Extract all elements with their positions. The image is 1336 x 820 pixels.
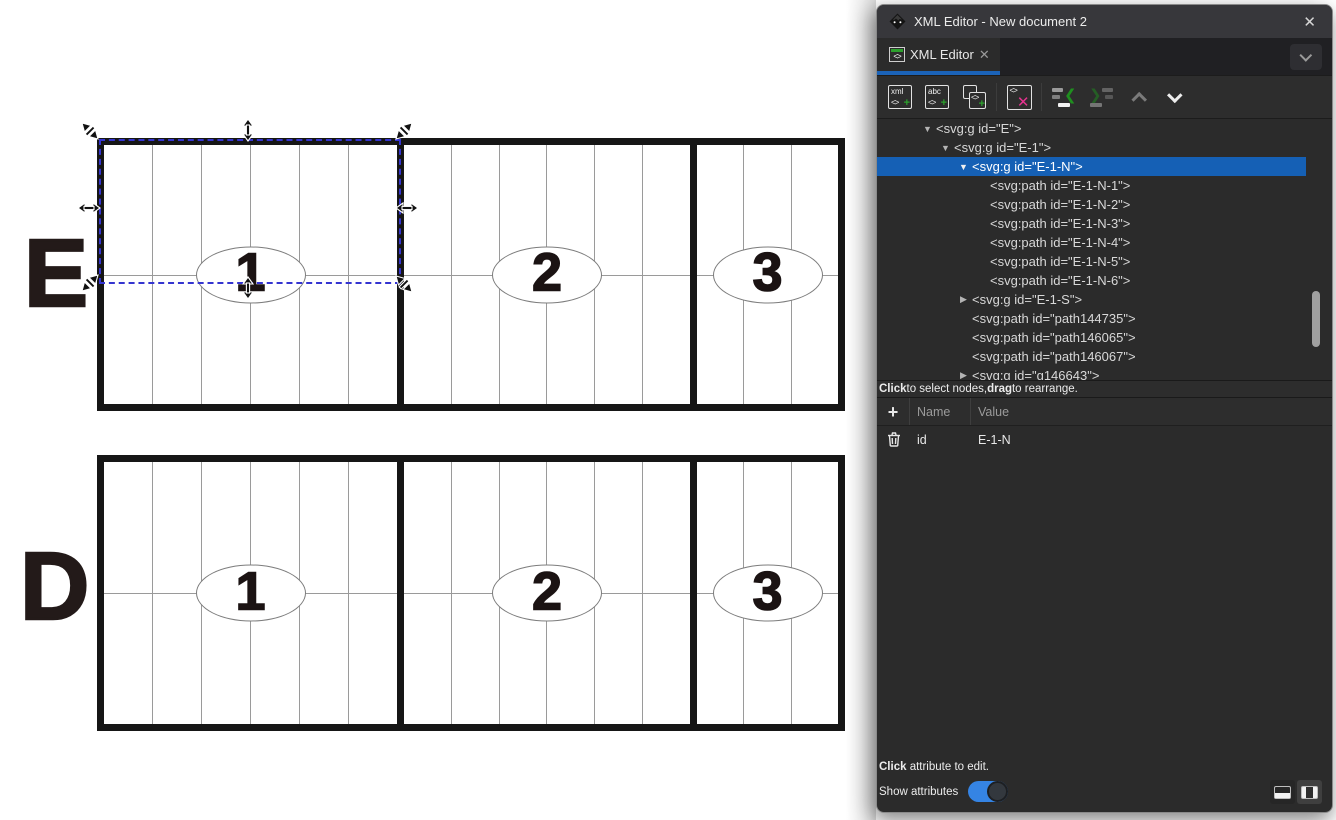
scale-handle-right-icon[interactable] [395, 201, 419, 215]
unindent-node-icon: ❮ [1051, 84, 1077, 110]
toolbar-separator [1041, 83, 1042, 111]
scale-handle-bottom-left-icon[interactable] [80, 273, 100, 293]
tree-row[interactable]: ▼<svg:g id="E"> [877, 119, 1306, 138]
figure-d-section-3[interactable]: 3 [697, 462, 838, 724]
attribute-value[interactable]: E-1-N [971, 433, 1332, 447]
dialog-close-button[interactable]: ✕ [1299, 13, 1320, 31]
selection-bbox [99, 139, 401, 284]
tab-xml-editor[interactable]: <> XML Editor ✕ [877, 38, 1000, 75]
xml-editor-dialog: XML Editor - New document 2 ✕ <> XML Edi… [876, 4, 1333, 813]
figure-e-section-3[interactable]: 3 [697, 145, 838, 404]
drawing-canvas[interactable]: E D 1 2 3 1 2 [0, 0, 876, 820]
node-label: <svg:g id="E-1-S"> [972, 292, 1082, 307]
xml-editor-tab-icon: <> [889, 47, 905, 62]
section-number: 2 [532, 564, 562, 622]
attribute-row[interactable]: idE-1-N [877, 426, 1332, 453]
expander-closed-icon[interactable]: ▶ [955, 294, 972, 305]
move-node-down-button[interactable] [1160, 82, 1190, 112]
tree-row[interactable]: <svg:path id="path144735"> [877, 309, 1306, 328]
section-ellipse[interactable]: 1 [196, 565, 306, 622]
section-ellipse[interactable]: 3 [713, 565, 823, 622]
show-attributes-label: Show attributes [879, 786, 958, 798]
tab-bar: <> XML Editor ✕ [877, 38, 1332, 75]
section-divider [690, 462, 697, 724]
tree-row[interactable]: <svg:path id="E-1-N-2"> [877, 195, 1306, 214]
scale-handle-bottom-right-icon[interactable] [394, 274, 414, 294]
chevron-up-icon [1131, 91, 1147, 107]
section-number: 3 [752, 564, 782, 622]
delete-node-icon: <> ✕ [1007, 85, 1032, 110]
tree-row[interactable]: <svg:path id="E-1-N-4"> [877, 233, 1306, 252]
chevron-down-icon [1167, 87, 1183, 103]
section-ellipse[interactable]: 2 [492, 565, 602, 622]
figure-letter-d[interactable]: D [20, 539, 89, 635]
tree-row[interactable]: <svg:path id="E-1-N-6"> [877, 271, 1306, 290]
scale-handle-left-icon[interactable] [77, 201, 101, 215]
scale-handle-top-icon[interactable] [241, 118, 255, 142]
tree-row[interactable]: <svg:path id="E-1-N-3"> [877, 214, 1306, 233]
node-label: <svg:path id="E-1-N-3"> [990, 216, 1130, 231]
tree-row[interactable]: <svg:path id="path146065"> [877, 328, 1306, 347]
delete-attribute-button[interactable] [877, 432, 910, 447]
horizontal-layout-button[interactable] [1270, 780, 1295, 804]
move-node-up-button[interactable] [1123, 82, 1153, 112]
indent-node-button[interactable]: ❯ [1086, 82, 1116, 112]
figure-d-section-1[interactable]: 1 [104, 462, 397, 724]
new-text-node-icon: abc <> + [925, 85, 949, 109]
xml-tree-rows: ▼<svg:g id="E">▼<svg:g id="E-1">▼<svg:g … [877, 119, 1332, 380]
node-label: <svg:path id="E-1-N-1"> [990, 178, 1130, 193]
section-number: 3 [752, 246, 782, 304]
chevron-down-icon [1299, 49, 1312, 62]
expander-open-icon[interactable]: ▼ [919, 124, 936, 134]
add-attribute-button[interactable]: + [877, 398, 910, 425]
tab-label: XML Editor [910, 47, 974, 62]
expander-open-icon[interactable]: ▼ [937, 143, 954, 153]
vertical-layout-icon [1301, 786, 1318, 799]
window-edge-shadow [846, 0, 876, 820]
attributes-table: idE-1-N [877, 426, 1332, 453]
indent-node-icon: ❯ [1088, 84, 1114, 110]
tree-row[interactable]: ▶<svg:g id="g146643"> [877, 366, 1306, 380]
dialog-title: XML Editor - New document 2 [914, 14, 1087, 29]
tab-close-button[interactable]: ✕ [979, 47, 990, 63]
tree-row[interactable]: ▼<svg:g id="E-1"> [877, 138, 1306, 157]
section-divider [397, 462, 404, 724]
figure-e-section-2[interactable]: 2 [404, 145, 690, 404]
new-element-node-icon: xml <> + [888, 85, 912, 109]
node-label: <svg:g id="E"> [936, 121, 1021, 136]
tree-hint-text: Click to select nodes, drag to rearrange… [877, 380, 1332, 397]
new-text-node-button[interactable]: abc <> + [922, 82, 952, 112]
duplicate-node-button[interactable]: <> + [959, 82, 989, 112]
attr-value-column-header: Value [971, 405, 1332, 419]
toolbar-separator [996, 83, 997, 111]
new-element-node-button[interactable]: xml <> + [885, 82, 915, 112]
figure-letter-e[interactable]: E [24, 226, 88, 322]
horizontal-layout-icon [1274, 786, 1291, 799]
node-label: <svg:path id="E-1-N-6"> [990, 273, 1130, 288]
scale-handle-top-left-icon[interactable] [80, 121, 100, 141]
unindent-node-button[interactable]: ❮ [1049, 82, 1079, 112]
dialog-titlebar[interactable]: XML Editor - New document 2 ✕ [877, 5, 1332, 38]
attribute-name[interactable]: id [910, 433, 971, 447]
section-ellipse[interactable]: 2 [492, 246, 602, 303]
tab-list-dropdown-button[interactable] [1290, 44, 1322, 70]
dialog-footer: Click attribute to edit. Show attributes [877, 757, 1332, 812]
show-attributes-toggle[interactable] [968, 781, 1008, 802]
vertical-layout-button[interactable] [1297, 780, 1322, 804]
attribute-hint-text: Click attribute to edit. [879, 761, 1330, 773]
tree-row[interactable]: ▼<svg:g id="E-1-N"> [877, 157, 1306, 176]
section-number: 2 [532, 246, 562, 304]
scale-handle-top-right-icon[interactable] [394, 121, 414, 141]
tree-row[interactable]: <svg:path id="E-1-N-5"> [877, 252, 1306, 271]
node-label: <svg:g id="E-1"> [954, 140, 1051, 155]
attributes-empty-area [877, 453, 1332, 757]
trash-icon [887, 432, 901, 447]
tree-row[interactable]: <svg:path id="path146067"> [877, 347, 1306, 366]
node-label: <svg:path id="E-1-N-2"> [990, 197, 1130, 212]
tree-row[interactable]: <svg:path id="E-1-N-1"> [877, 176, 1306, 195]
tree-scrollbar-thumb[interactable] [1312, 291, 1320, 347]
inkscape-logo-icon [889, 13, 906, 30]
node-label: <svg:path id="E-1-N-4"> [990, 235, 1130, 250]
node-label: <svg:path id="path146065"> [972, 330, 1136, 345]
expander-closed-icon[interactable]: ▶ [955, 370, 972, 380]
node-label: <svg:g id="E-1-N"> [972, 159, 1083, 174]
figure-d[interactable]: 1 2 3 [97, 455, 845, 731]
tree-row[interactable]: ▶<svg:g id="E-1-S"> [877, 290, 1306, 309]
scale-handle-bottom-icon[interactable] [241, 276, 255, 300]
attr-name-column-header: Name [910, 398, 971, 425]
node-label: <svg:path id="E-1-N-5"> [990, 254, 1130, 269]
toggle-knob [987, 781, 1008, 802]
xml-tree[interactable]: ▼<svg:g id="E">▼<svg:g id="E-1">▼<svg:g … [877, 118, 1332, 380]
node-label: <svg:path id="path146067"> [972, 349, 1136, 364]
node-label: <svg:path id="path144735"> [972, 311, 1136, 326]
delete-node-button[interactable]: <> ✕ [1004, 82, 1034, 112]
section-divider [690, 145, 697, 404]
node-label: <svg:g id="g146643"> [972, 368, 1099, 380]
section-number: 1 [235, 564, 265, 622]
section-ellipse[interactable]: 3 [713, 246, 823, 303]
figure-d-section-2[interactable]: 2 [404, 462, 690, 724]
xml-toolbar: xml <> + abc <> + <> + <> ✕ [877, 75, 1332, 118]
expander-open-icon[interactable]: ▼ [955, 162, 972, 172]
attributes-header: + Name Value [877, 397, 1332, 426]
